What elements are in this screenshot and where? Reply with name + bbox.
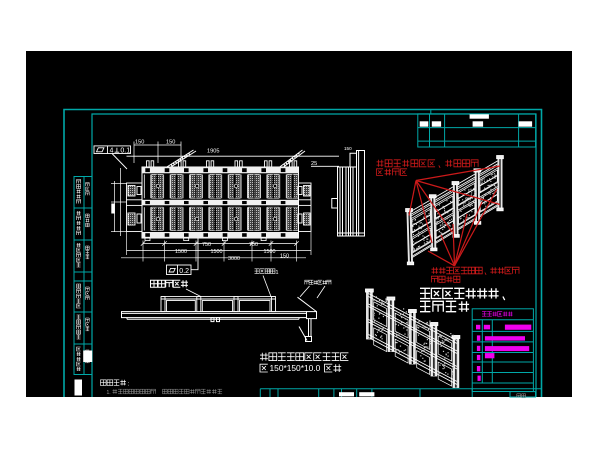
svg-text:150*150*10.0: 150*150*10.0: [270, 363, 321, 373]
svg-text:750: 750: [249, 242, 258, 248]
svg-text:150: 150: [280, 254, 289, 260]
svg-text:150: 150: [344, 146, 352, 151]
svg-text:1500: 1500: [264, 249, 276, 255]
svg-text:1500: 1500: [175, 249, 187, 255]
svg-text:0.2: 0.2: [179, 268, 189, 275]
svg-text:4: 4: [110, 148, 114, 155]
svg-text:1: 1: [276, 270, 279, 276]
svg-text:3000: 3000: [228, 256, 240, 262]
svg-text:1.: 1.: [107, 390, 111, 396]
svg-text:0.1: 0.1: [120, 148, 130, 155]
svg-text:1905: 1905: [207, 149, 219, 155]
svg-text:1500: 1500: [211, 249, 223, 255]
svg-text:750: 750: [202, 242, 211, 248]
svg-text:25: 25: [311, 161, 317, 167]
